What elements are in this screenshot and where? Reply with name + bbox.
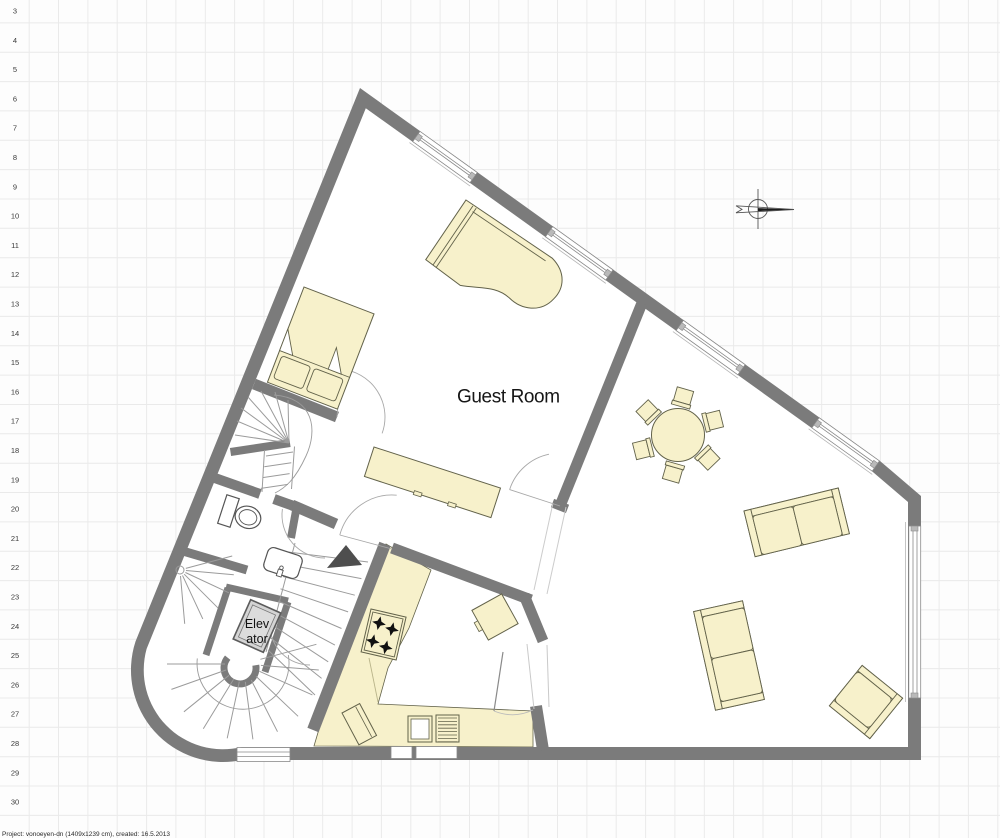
svg-text:17: 17 [11, 417, 19, 426]
svg-text:27: 27 [11, 710, 19, 719]
svg-text:6: 6 [13, 94, 17, 103]
svg-text:Elev: Elev [245, 617, 270, 631]
svg-text:20: 20 [11, 505, 19, 514]
svg-text:7: 7 [13, 124, 17, 133]
svg-text:Project: vonoeyen-dn (1409x123: Project: vonoeyen-dn (1409x1239 cm), cre… [2, 831, 170, 838]
svg-text:30: 30 [11, 798, 19, 807]
svg-text:25: 25 [11, 651, 19, 660]
svg-text:18: 18 [11, 446, 19, 455]
svg-text:28: 28 [11, 739, 19, 748]
svg-text:15: 15 [11, 358, 19, 367]
svg-text:29: 29 [11, 768, 19, 777]
svg-text:14: 14 [11, 329, 19, 338]
svg-text:21: 21 [11, 534, 19, 543]
svg-text:13: 13 [11, 300, 19, 309]
svg-text:4: 4 [13, 36, 17, 45]
svg-text:24: 24 [11, 622, 19, 631]
svg-text:23: 23 [11, 593, 19, 602]
svg-text:3: 3 [13, 7, 17, 16]
svg-text:Guest Room: Guest Room [457, 387, 560, 408]
svg-text:10: 10 [11, 212, 19, 221]
svg-text:22: 22 [11, 563, 19, 572]
svg-text:26: 26 [11, 680, 19, 689]
svg-text:16: 16 [11, 387, 19, 396]
svg-text:ator: ator [246, 632, 268, 646]
svg-text:9: 9 [13, 182, 17, 191]
svg-text:8: 8 [13, 153, 17, 162]
svg-text:12: 12 [11, 270, 19, 279]
svg-text:19: 19 [11, 475, 19, 484]
svg-text:5: 5 [13, 65, 17, 74]
svg-text:11: 11 [11, 241, 19, 250]
